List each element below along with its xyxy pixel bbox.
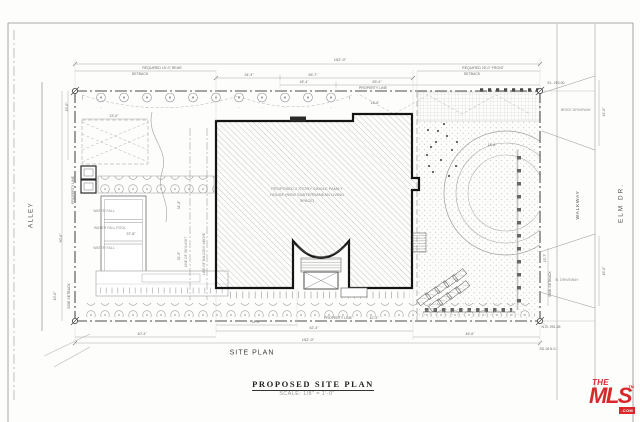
dim-18-6-a: 18'-6" — [371, 101, 380, 104]
natural-grade-label: N.G. 251.26 — [542, 325, 561, 329]
dim-34-3: 34'-3" — [245, 73, 254, 77]
site-plan-sheet: { "sheet": { "plan_label": "SITE PLAN", … — [0, 0, 640, 422]
dim-15-7: 15'-7" — [543, 254, 546, 263]
mls-logo-com: .COM — [619, 407, 635, 414]
side-setback-label-right: SIDE SETBACK — [548, 271, 552, 297]
dim-18-4: 18'-4" — [300, 80, 309, 84]
corner-elevation-label: EL. 253.00 — [547, 81, 564, 85]
building-label-line1: PROPOSED 2 STORY SINGLE FAMILY — [271, 187, 343, 191]
natural-grade-small-label: 251.26 N.G. — [539, 347, 556, 350]
property-line-label-bottom: PROPERTY LINE — [324, 316, 352, 320]
dim-overall-bottom: 152'-0" — [302, 338, 314, 342]
building-label-line3: SPACE) — [300, 199, 315, 203]
dim-overall-top: 152'-0" — [334, 58, 346, 62]
dim-31-3: 31'-3" — [177, 252, 180, 261]
dim-90-6: 90'-6" — [59, 234, 63, 243]
dim-14-0-driveway: 14'-0" — [602, 108, 606, 117]
mls-logo: THE MLS TM .COM — [588, 377, 635, 417]
dim-42-4: 42'-4" — [370, 316, 379, 320]
n-driveway-label: N. DRIVEWAY — [556, 278, 579, 282]
dim-15-0: 15'-0" — [65, 103, 69, 112]
water-fall-lower-label: WATER FALL — [93, 246, 115, 250]
elm-dr-street-label: ELM DR. — [618, 183, 624, 223]
dim-45-6: 45'-6" — [466, 332, 475, 336]
dim-65-7: 65'-7" — [309, 73, 318, 77]
dim-16-0-driveway: 16'-0" — [602, 267, 606, 276]
dim-83-4: 83'-4" — [373, 80, 382, 84]
dim-37-8-pool: 37'-8" — [127, 232, 136, 236]
building-label-line2: HOUSE (NEW SUBTERRANEAN LIVING — [270, 193, 344, 197]
drawing-title: PROPOSED SITE PLAN — [252, 379, 374, 391]
dim-10-0: 10'-0" — [53, 292, 57, 301]
side-setback-label-left: SIDE SETBACK — [67, 283, 71, 309]
front-setback-note-line2: SETBACK — [464, 72, 480, 76]
brick-driveway-label: BRICK DRIVEWAY — [561, 108, 591, 112]
rear-setback-note-line1: REQUIRED 15'-0" REAR — [142, 66, 181, 70]
dim-62-4: 62'-4" — [310, 326, 319, 330]
property-line-label-top: PROPERTY LINE — [359, 86, 387, 90]
dim-40-3: 40'-3" — [138, 332, 147, 336]
property-line-label-left: PROPERTY LINE — [71, 176, 75, 204]
dim-23-0: 23'-0" — [110, 114, 119, 118]
site-plan-label: SITE PLAN — [230, 350, 275, 357]
alley-street-label: ALLEY — [28, 202, 34, 228]
front-setback-note-line1: REQUIRED 25'-0" FRONT — [462, 66, 504, 70]
mls-logo-mls: MLS — [589, 383, 631, 409]
line-of-balcony-label: LINE OF BALCONY ABOVE — [202, 233, 205, 275]
rear-setback-note-line2: SETBACK — [132, 72, 148, 76]
dim-34-4: 34'-4" — [252, 320, 261, 324]
mls-logo-tm-mark: TM — [628, 384, 634, 389]
line-of-skylight-label: LINE OF SKYLIGHT — [184, 237, 187, 268]
dim-18-6-b: 18'-6" — [488, 143, 497, 146]
water-fall-pool-label: WATER FALL POOL — [94, 226, 126, 230]
drawing-scale: SCALE: 1/8" = 1'-0" — [279, 391, 335, 397]
walkway-label: WALKWAY — [576, 191, 581, 220]
water-fall-upper-label: WATER FALL — [93, 209, 115, 213]
dim-31-4: 31'-4" — [177, 201, 180, 210]
